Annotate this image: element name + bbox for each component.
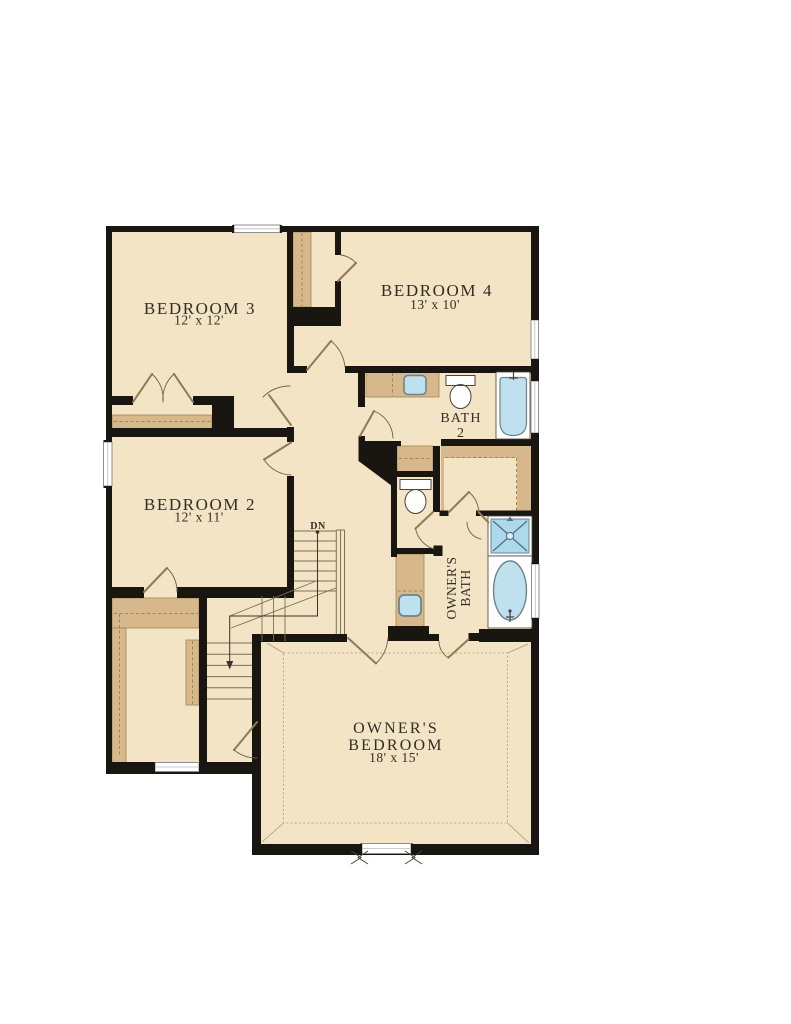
svg-text:13' x 10': 13' x 10' — [410, 297, 460, 312]
svg-text:DN: DN — [310, 521, 326, 532]
svg-text:12' x 12': 12' x 12' — [174, 313, 224, 328]
svg-text:18' x 15': 18' x 15' — [369, 750, 419, 765]
svg-text:BATH: BATH — [440, 411, 481, 426]
svg-text:OWNER'S: OWNER'S — [353, 720, 439, 737]
svg-text:2: 2 — [457, 426, 464, 441]
svg-text:12' x 11': 12' x 11' — [174, 510, 223, 525]
svg-text:BATH: BATH — [458, 569, 473, 606]
svg-text:OWNER'S: OWNER'S — [444, 557, 459, 620]
